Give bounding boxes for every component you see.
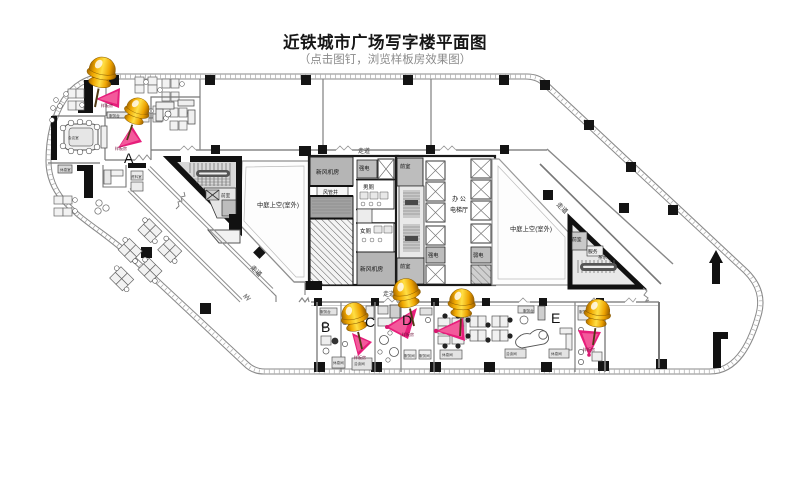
svg-text:D: D — [402, 312, 412, 328]
svg-text:服务间: 服务间 — [419, 353, 430, 358]
svg-text:服务: 服务 — [588, 248, 598, 255]
svg-text:前室: 前室 — [572, 236, 582, 243]
svg-text:服务台: 服务台 — [320, 309, 331, 314]
svg-text:弱电: 弱电 — [473, 251, 483, 259]
svg-text:会议室: 会议室 — [68, 135, 79, 140]
svg-text:样板房: 样板房 — [101, 102, 113, 108]
svg-text:服务间: 服务间 — [404, 353, 415, 358]
svg-text:前室: 前室 — [400, 262, 410, 270]
svg-text:（点击图钉，浏览样板房效果图）: （点击图钉，浏览样板房效果图） — [299, 52, 472, 66]
svg-text:女厕: 女厕 — [360, 227, 372, 235]
svg-text:走道: 走道 — [249, 263, 265, 279]
svg-text:样板房: 样板房 — [583, 346, 595, 352]
svg-text:近铁城市广场写字楼平面图: 近铁城市广场写字楼平面图 — [283, 32, 487, 52]
svg-text:样板房: 样板房 — [402, 331, 414, 337]
svg-text:休息间: 休息间 — [442, 352, 453, 357]
svg-text:强电: 强电 — [359, 164, 369, 172]
svg-text:休息间: 休息间 — [551, 351, 562, 356]
svg-text:电梯厅: 电梯厅 — [450, 206, 468, 214]
svg-text:中庭上空(室外): 中庭上空(室外) — [257, 200, 299, 209]
svg-text:B: B — [321, 319, 330, 335]
svg-text:风管井: 风管井 — [323, 189, 338, 196]
svg-text:样板房: 样板房 — [354, 354, 366, 360]
svg-text:中庭上空(室外): 中庭上空(室外) — [510, 224, 552, 233]
svg-text:服务台: 服务台 — [523, 308, 534, 313]
svg-text:男厕: 男厕 — [363, 184, 375, 191]
svg-text:走道: 走道 — [358, 147, 370, 155]
svg-text:服务台: 服务台 — [109, 113, 120, 118]
svg-text:洽谈间: 洽谈间 — [506, 351, 517, 356]
svg-text:洽谈间: 洽谈间 — [354, 361, 365, 366]
svg-text:新风机房: 新风机房 — [360, 265, 383, 273]
svg-text:资料室: 资料室 — [131, 174, 142, 179]
svg-text:E: E — [551, 310, 560, 326]
svg-text:C: C — [365, 314, 375, 330]
svg-text:前室: 前室 — [221, 192, 231, 199]
svg-text:休息室: 休息室 — [60, 167, 71, 172]
svg-text:强电: 强电 — [428, 251, 438, 259]
svg-text:休息间: 休息间 — [333, 360, 344, 365]
svg-text:茶水: 茶水 — [598, 254, 607, 260]
svg-text:新风机房: 新风机房 — [316, 168, 339, 176]
svg-text:走道: 走道 — [555, 200, 571, 216]
svg-text:前室: 前室 — [400, 162, 410, 170]
svg-text:A: A — [124, 150, 134, 166]
svg-text:办 公: 办 公 — [452, 195, 466, 203]
